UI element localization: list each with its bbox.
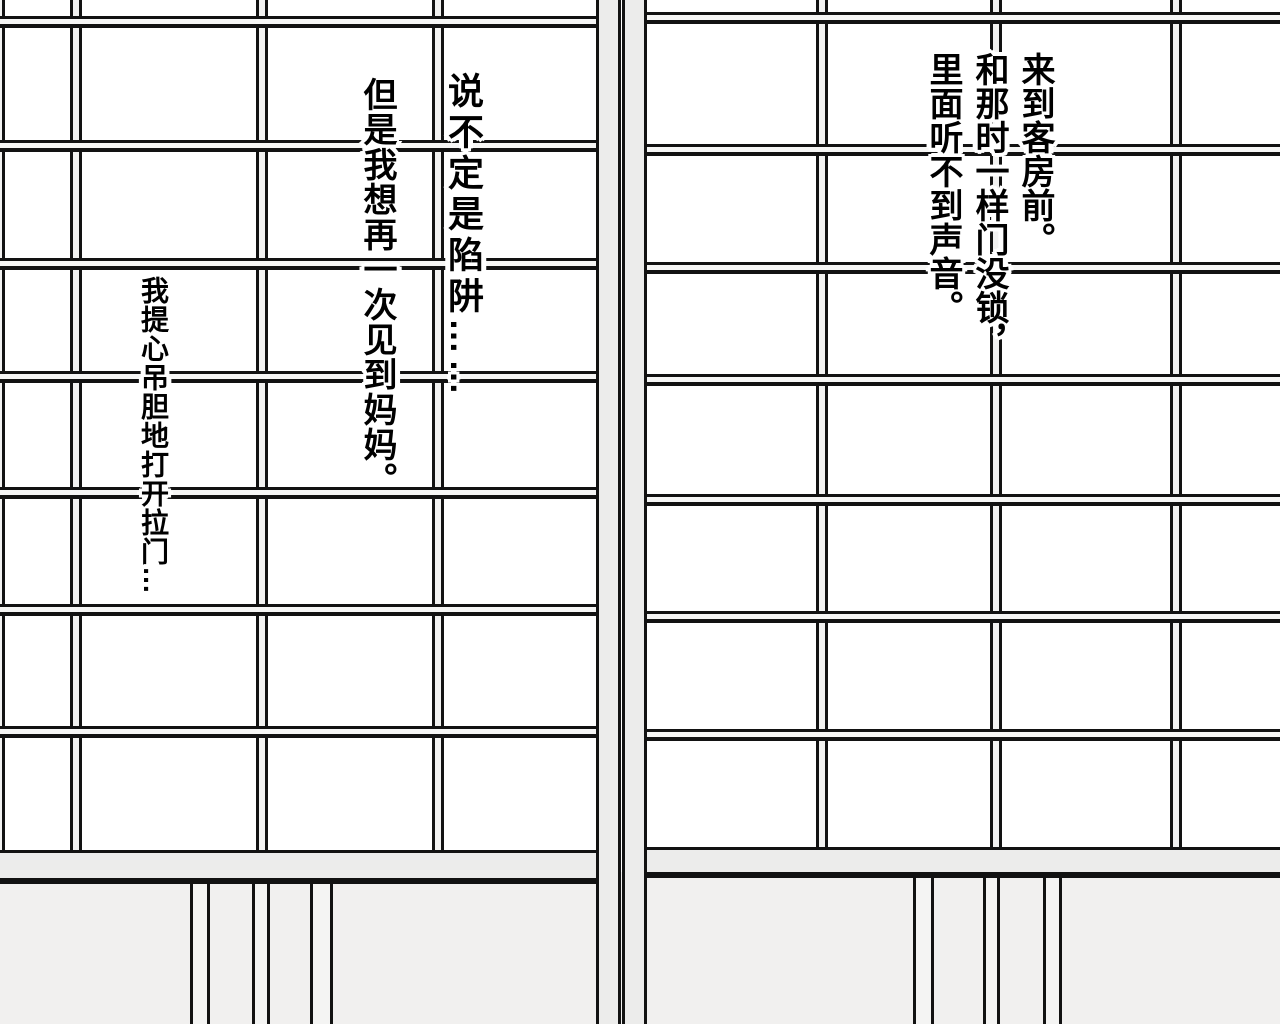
caption-see-mother-again: 但是我想再一次见到妈妈。: [358, 77, 396, 497]
floor-strip: [983, 878, 1000, 1024]
floor-strip: [913, 878, 934, 1024]
lattice-bar: [647, 611, 1280, 623]
caption-maybe-a-trap: 说不定是陷阱……: [443, 72, 483, 400]
lattice-bar: [0, 726, 596, 738]
lattice-bar: [0, 16, 596, 28]
door-bottom-rail: [646, 847, 1280, 878]
lattice-bar: [647, 12, 1280, 24]
caption-open-door-nervously: 我提心吊胆地打开拉门…: [137, 276, 169, 595]
lattice-vertical: [816, 0, 828, 847]
lattice-vertical: [256, 0, 268, 850]
shoji-doors-artwork: [0, 0, 1280, 1024]
door-stile: [622, 0, 647, 1024]
shoji-door-left-paper: [0, 0, 596, 850]
lattice-bar: [647, 729, 1280, 741]
lattice-vertical: [70, 0, 82, 850]
lattice-bar: [647, 494, 1280, 506]
caption-arrive-at-guest-room: 来到客房前。 和那时一样门没锁， 里面听不到声音。: [920, 52, 1058, 358]
lattice-bar: [0, 140, 596, 152]
manga-panel: 来到客房前。 和那时一样门没锁， 里面听不到声音。 说不定是陷阱…… 但是我想再…: [0, 0, 1280, 1024]
lattice-vertical: [0, 0, 5, 850]
floor-strip: [190, 884, 210, 1024]
floor-strip: [310, 884, 333, 1024]
lattice-bar: [0, 487, 596, 499]
floor-strip: [1043, 878, 1062, 1024]
floor-strip: [252, 884, 270, 1024]
lattice-bar: [647, 374, 1280, 386]
lattice-bar: [0, 258, 596, 270]
lattice-bar: [0, 371, 596, 383]
door-stile: [596, 0, 621, 1024]
door-bottom-rail: [0, 850, 596, 884]
lattice-bar: [0, 604, 596, 616]
lattice-vertical: [1170, 0, 1182, 847]
